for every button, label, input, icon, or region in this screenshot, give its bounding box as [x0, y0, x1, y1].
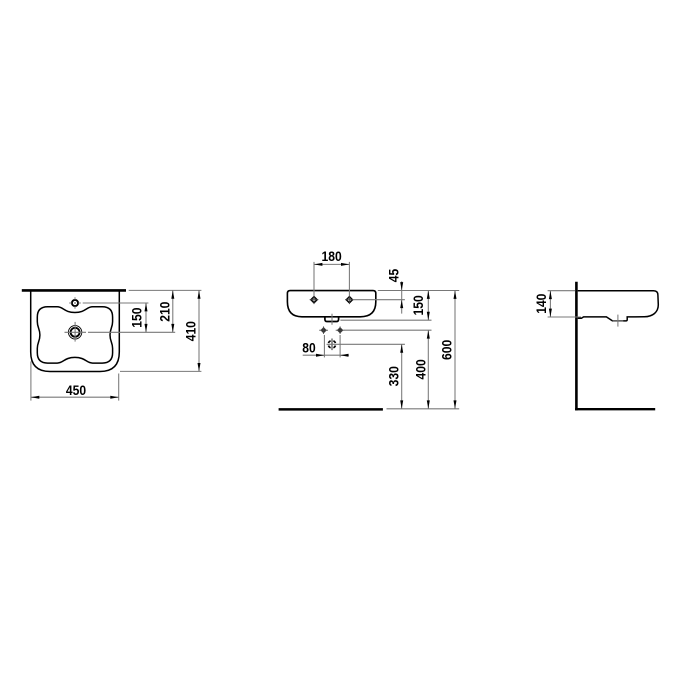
svg-text:180: 180	[322, 249, 342, 264]
svg-text:600: 600	[439, 340, 454, 360]
svg-text:150: 150	[129, 308, 144, 328]
svg-text:140: 140	[534, 294, 549, 314]
svg-text:150: 150	[411, 295, 426, 315]
svg-text:80: 80	[302, 340, 315, 355]
svg-text:330: 330	[387, 366, 402, 386]
svg-text:450: 450	[66, 383, 86, 398]
svg-text:45: 45	[387, 268, 402, 282]
svg-text:410: 410	[184, 321, 199, 341]
svg-text:400: 400	[413, 359, 428, 379]
svg-text:210: 210	[157, 302, 172, 322]
